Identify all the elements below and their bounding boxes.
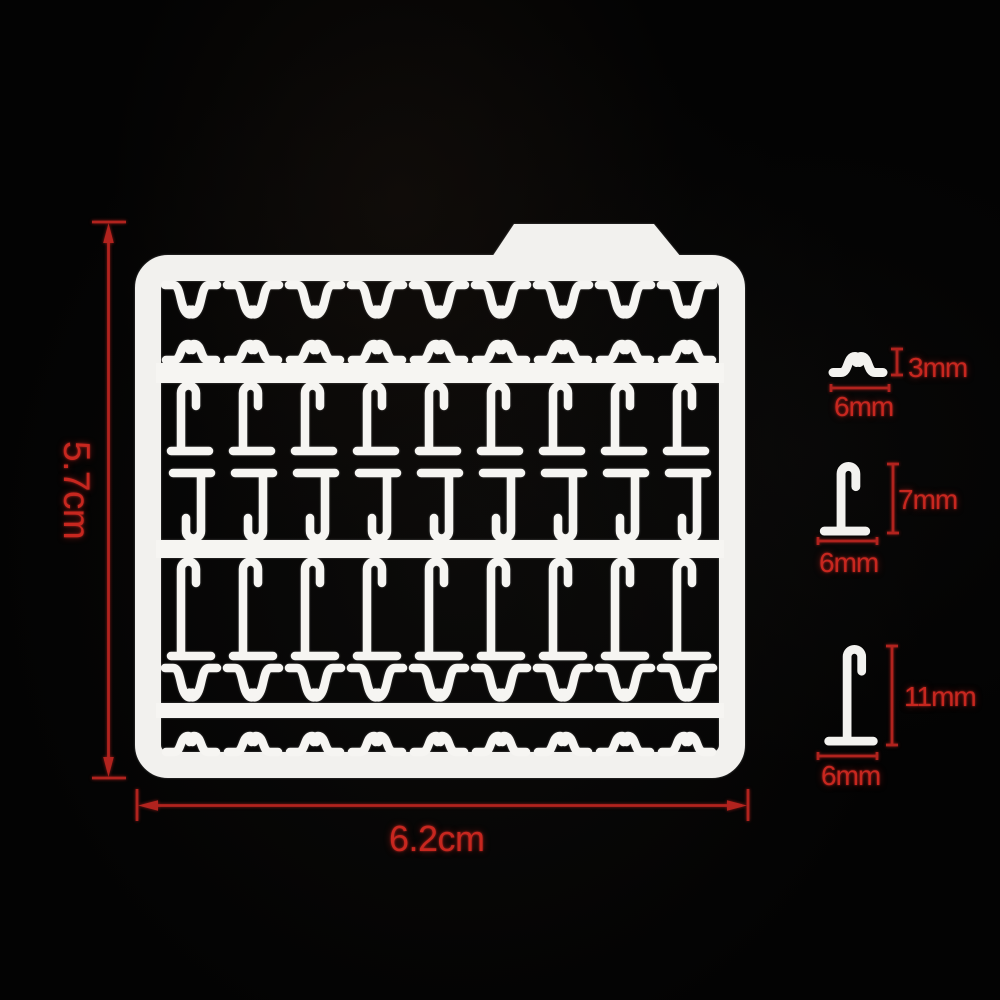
arrowhead-down xyxy=(103,757,114,777)
large-stop-height-label: 11mm xyxy=(904,681,976,713)
small-stop-dimensions xyxy=(831,349,903,392)
small-stop-height-label: 3mm xyxy=(908,352,967,384)
width-dimension xyxy=(137,789,748,821)
small-stop-width-label: 6mm xyxy=(834,391,893,423)
large-stop-dimensions xyxy=(818,646,898,760)
sprue-height-label: 5.7cm xyxy=(55,441,97,539)
height-dimension xyxy=(92,222,126,778)
medium-stop-dimensions xyxy=(818,464,899,545)
sprue-width-label: 6.2cm xyxy=(389,818,485,860)
medium-stop-width-label: 6mm xyxy=(819,547,878,579)
arrowhead-up xyxy=(103,223,114,243)
large-stop-width-label: 6mm xyxy=(821,760,880,792)
medium-stop-height-label: 7mm xyxy=(898,484,957,516)
dimension-annotations xyxy=(0,0,1000,1000)
arrowhead-left xyxy=(138,800,158,810)
photo-background: 5.7cm 6.2cm 3mm 6mm 7mm 6mm 11mm 6mm xyxy=(0,0,1000,1000)
arrowhead-right xyxy=(727,800,747,810)
